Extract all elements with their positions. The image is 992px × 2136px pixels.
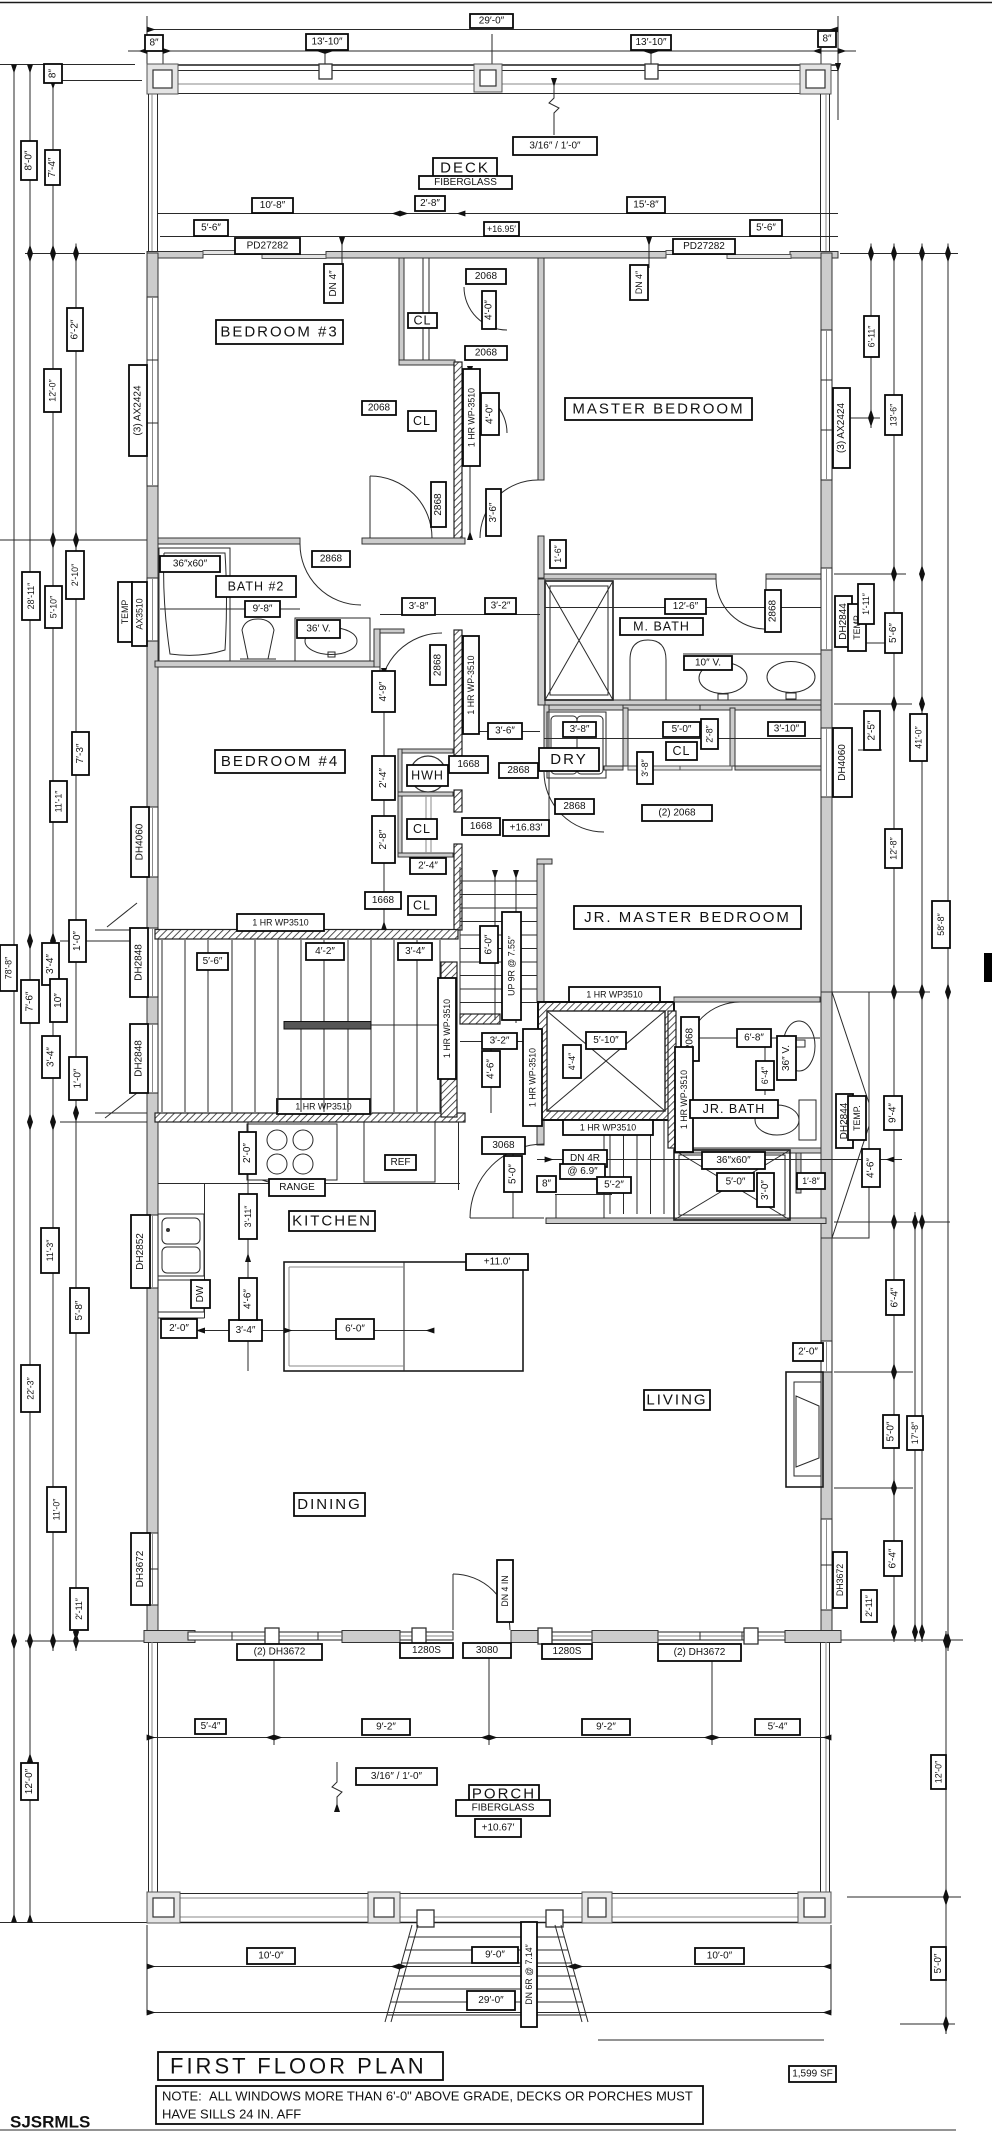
svg-text:1280S: 1280S xyxy=(553,1646,582,1657)
svg-text:1 HR WP3510: 1 HR WP3510 xyxy=(580,1123,636,1133)
svg-text:CL: CL xyxy=(413,414,431,428)
svg-text:3′-11″: 3′-11″ xyxy=(243,1206,253,1228)
svg-text:12′-6″: 12′-6″ xyxy=(673,601,699,612)
svg-text:12′-0″: 12′-0″ xyxy=(934,1761,944,1783)
svg-text:9′-2″: 9′-2″ xyxy=(596,1722,616,1733)
svg-text:6′-4″: 6′-4″ xyxy=(760,1067,770,1084)
svg-text:8″: 8″ xyxy=(542,1179,552,1190)
svg-text:9′-8″: 9′-8″ xyxy=(253,604,273,615)
svg-text:6′-4″: 6′-4″ xyxy=(890,1287,901,1307)
svg-text:1′-8″: 1′-8″ xyxy=(802,1176,819,1186)
svg-text:5′-2″: 5′-2″ xyxy=(604,1180,624,1191)
svg-text:12′-0″: 12′-0″ xyxy=(48,379,58,401)
svg-text:CL: CL xyxy=(413,899,431,913)
svg-text:4′-2″: 4′-2″ xyxy=(315,946,335,957)
svg-text:TEMP.: TEMP. xyxy=(852,1105,862,1131)
svg-text:3′-8″: 3′-8″ xyxy=(409,601,429,612)
svg-text:2868: 2868 xyxy=(433,493,444,516)
svg-text:3/16″ / 1′-0″: 3/16″ / 1′-0″ xyxy=(371,1771,423,1782)
svg-text:3′-6″: 3′-6″ xyxy=(495,726,515,737)
svg-text:2868: 2868 xyxy=(320,554,343,565)
svg-text:1,599 SF: 1,599 SF xyxy=(792,2069,833,2080)
svg-text:13′-10″: 13′-10″ xyxy=(636,37,667,48)
svg-text:7′-6″: 7′-6″ xyxy=(25,991,36,1011)
svg-text:BATH #2: BATH #2 xyxy=(228,580,285,594)
svg-text:1 HR WP-3510: 1 HR WP-3510 xyxy=(679,1070,689,1129)
svg-text:DRY: DRY xyxy=(550,751,587,768)
svg-text:(2) 2068: (2) 2068 xyxy=(658,808,696,819)
svg-text:LIVING: LIVING xyxy=(646,1392,707,1409)
svg-text:CL: CL xyxy=(673,744,691,758)
svg-text:6′-4″: 6′-4″ xyxy=(888,1548,899,1568)
svg-text:58′-8″: 58′-8″ xyxy=(936,913,946,935)
svg-text:DH4060: DH4060 xyxy=(135,823,146,860)
svg-text:1′-11″: 1′-11″ xyxy=(861,593,871,615)
svg-text:1 HR WP3510: 1 HR WP3510 xyxy=(586,990,642,1000)
svg-text:10′-0″: 10′-0″ xyxy=(707,1951,733,1962)
svg-text:FIRST FLOOR PLAN: FIRST FLOOR PLAN xyxy=(170,2054,427,2079)
svg-text:4′-6″: 4′-6″ xyxy=(243,1289,254,1309)
svg-text:1280S: 1280S xyxy=(412,1645,441,1656)
svg-text:10″: 10″ xyxy=(53,993,64,1008)
svg-text:2′-0″: 2′-0″ xyxy=(798,1347,818,1358)
svg-text:1668: 1668 xyxy=(470,821,493,832)
svg-text:11′-3″: 11′-3″ xyxy=(45,1240,55,1262)
svg-text:M. BATH: M. BATH xyxy=(633,620,690,634)
svg-text:3′-0″: 3′-0″ xyxy=(760,1180,771,1200)
svg-text:1′-0″: 1′-0″ xyxy=(73,1068,84,1088)
svg-text:6′-8″: 6′-8″ xyxy=(744,1033,764,1044)
svg-text:1′-6″: 1′-6″ xyxy=(553,545,563,562)
svg-text:10′-0″: 10′-0″ xyxy=(258,1951,284,1962)
svg-text:DECK: DECK xyxy=(440,160,490,177)
svg-text:1′-0″: 1′-0″ xyxy=(72,931,83,951)
svg-text:HWH: HWH xyxy=(411,769,444,783)
svg-text:1668: 1668 xyxy=(372,895,395,906)
svg-text:CL: CL xyxy=(414,314,432,328)
svg-text:PD27282: PD27282 xyxy=(247,241,289,252)
svg-text:5′-6″: 5′-6″ xyxy=(203,956,223,967)
svg-text:9′-2″: 9′-2″ xyxy=(376,1722,396,1733)
svg-text:5′-6″: 5′-6″ xyxy=(201,223,221,234)
svg-text:22′-3″: 22′-3″ xyxy=(26,1377,36,1399)
svg-text:+16.83′: +16.83′ xyxy=(510,823,543,834)
svg-text:2′-4″: 2′-4″ xyxy=(418,861,438,872)
svg-text:2′-11″: 2′-11″ xyxy=(74,1598,84,1620)
svg-text:MASTER BEDROOM: MASTER BEDROOM xyxy=(572,401,744,418)
svg-text:8″: 8″ xyxy=(48,68,59,78)
svg-text:FIBERGLASS: FIBERGLASS xyxy=(434,177,497,188)
svg-text:36″x60″: 36″x60″ xyxy=(716,1155,751,1166)
svg-text:5′-0″: 5′-0″ xyxy=(508,1164,519,1184)
svg-text:9′-0″: 9′-0″ xyxy=(485,1950,505,1961)
svg-text:78′-8″: 78′-8″ xyxy=(4,957,14,979)
svg-text:@ 6.9″: @ 6.9″ xyxy=(567,1166,598,1177)
svg-text:6′-2″: 6′-2″ xyxy=(70,319,81,339)
svg-text:5′-10″: 5′-10″ xyxy=(49,596,59,618)
svg-text:3080: 3080 xyxy=(476,1645,499,1656)
svg-text:+16.95′: +16.95′ xyxy=(487,224,516,234)
svg-text:4′-0″: 4′-0″ xyxy=(485,404,496,424)
svg-text:29′-0″: 29′-0″ xyxy=(479,16,505,27)
svg-text:1668: 1668 xyxy=(457,759,480,770)
svg-text:3′-10″: 3′-10″ xyxy=(774,724,800,735)
svg-text:DN 4″: DN 4″ xyxy=(634,271,644,294)
svg-text:3′-4″: 3′-4″ xyxy=(236,1325,256,1336)
svg-text:3′-2″: 3′-2″ xyxy=(490,1036,510,1047)
svg-text:DN 4R: DN 4R xyxy=(570,1153,600,1164)
svg-text:1 HR WP3510: 1 HR WP3510 xyxy=(252,918,308,928)
svg-text:2868: 2868 xyxy=(563,801,586,812)
svg-text:(3) AX2424: (3) AX2424 xyxy=(836,403,847,453)
svg-text:2′-4″: 2′-4″ xyxy=(378,768,389,788)
svg-text:5′-4″: 5′-4″ xyxy=(201,1721,221,1732)
svg-text:BEDROOM #4: BEDROOM #4 xyxy=(221,753,339,770)
svg-text:JR. BATH: JR. BATH xyxy=(703,1102,766,1116)
svg-text:6′-11″: 6′-11″ xyxy=(867,326,877,348)
svg-text:BEDROOM #3: BEDROOM #3 xyxy=(220,324,338,341)
svg-text:2′-5″: 2′-5″ xyxy=(867,720,878,740)
svg-text:17′-8″: 17′-8″ xyxy=(910,1422,920,1444)
svg-text:2′-8″: 2′-8″ xyxy=(705,725,715,742)
svg-text:DINING: DINING xyxy=(297,1496,362,1513)
svg-text:DH3672: DH3672 xyxy=(835,1564,845,1596)
svg-text:DN 6R @ 7.14″: DN 6R @ 7.14″ xyxy=(524,1944,534,2004)
svg-text:1 HR WP-3510: 1 HR WP-3510 xyxy=(466,655,476,714)
svg-text:8″: 8″ xyxy=(149,38,159,49)
svg-text:8′-0″: 8′-0″ xyxy=(24,150,35,170)
svg-text:JR. MASTER BEDROOM: JR. MASTER BEDROOM xyxy=(584,909,791,926)
svg-text:UP 9R @ 7.55″: UP 9R @ 7.55″ xyxy=(507,936,517,996)
svg-text:10′-8″: 10′-8″ xyxy=(260,200,286,211)
svg-text:1 HR WP-3510: 1 HR WP-3510 xyxy=(467,388,477,447)
svg-text:2868: 2868 xyxy=(433,653,444,676)
svg-text:5′-0″: 5′-0″ xyxy=(726,1177,746,1188)
svg-text:2′-8″: 2′-8″ xyxy=(378,829,389,849)
svg-text:9′-4″: 9′-4″ xyxy=(888,1103,899,1123)
svg-text:RANGE: RANGE xyxy=(279,1182,315,1193)
svg-text:1 HR WP-3510: 1 HR WP-3510 xyxy=(528,1048,538,1107)
svg-text:2′-0″: 2′-0″ xyxy=(242,1143,253,1163)
svg-text:5′-0″: 5′-0″ xyxy=(672,724,692,735)
svg-text:12′-8″: 12′-8″ xyxy=(889,837,899,859)
svg-text:5′-10″: 5′-10″ xyxy=(593,1035,619,1046)
svg-text:15′-8″: 15′-8″ xyxy=(633,200,659,211)
svg-text:29′-0″: 29′-0″ xyxy=(478,1995,504,2006)
svg-text:5′-0″: 5′-0″ xyxy=(886,1421,897,1441)
svg-text:1 HR WP-3510: 1 HR WP-3510 xyxy=(442,999,452,1058)
svg-text:TEMP: TEMP xyxy=(120,600,130,625)
svg-text:2′-10″: 2′-10″ xyxy=(70,564,80,586)
svg-text:28′-11″: 28′-11″ xyxy=(26,583,36,610)
svg-text:3′-6″: 3′-6″ xyxy=(488,502,499,522)
svg-text:5′-8″: 5′-8″ xyxy=(74,1300,85,1320)
svg-text:DN 4″: DN 4″ xyxy=(328,270,339,297)
svg-text:2′-0″: 2′-0″ xyxy=(169,1323,189,1334)
svg-text:DH2848: DH2848 xyxy=(134,944,145,981)
svg-text:PD27282: PD27282 xyxy=(683,241,725,252)
svg-text:3′-4″: 3′-4″ xyxy=(46,1047,57,1067)
svg-text:36″ V.: 36″ V. xyxy=(781,1045,792,1071)
svg-text:4′-0″: 4′-0″ xyxy=(484,300,495,320)
svg-text:2068: 2068 xyxy=(475,271,498,282)
svg-text:REF: REF xyxy=(391,1157,411,1168)
svg-text:+11.0′: +11.0′ xyxy=(484,1257,511,1268)
svg-text:DN 4 IN: DN 4 IN xyxy=(500,1575,510,1606)
svg-text:36″x60″: 36″x60″ xyxy=(173,559,208,570)
svg-text:12′-0″: 12′-0″ xyxy=(24,1768,35,1794)
svg-text:8″: 8″ xyxy=(822,34,832,45)
svg-text:2868: 2868 xyxy=(507,765,530,776)
svg-text:(2) DH3672: (2) DH3672 xyxy=(254,1647,306,1658)
svg-text:7′-4″: 7′-4″ xyxy=(47,157,58,177)
svg-text:SJSRMLS: SJSRMLS xyxy=(10,2113,90,2132)
svg-text:13′-6″: 13′-6″ xyxy=(889,404,899,426)
svg-text:41′-0″: 41′-0″ xyxy=(914,726,924,748)
svg-text:NOTE: ALL WINDOWS MORE THAN 6: NOTE: ALL WINDOWS MORE THAN 6'-0" ABOVE … xyxy=(162,2089,693,2104)
svg-text:6′-0″: 6′-0″ xyxy=(345,1324,365,1335)
svg-text:(3) AX2424: (3) AX2424 xyxy=(133,385,144,435)
svg-text:DH2852: DH2852 xyxy=(135,1233,146,1270)
svg-text:3′-8″: 3′-8″ xyxy=(640,759,650,776)
svg-text:2068: 2068 xyxy=(368,403,391,414)
svg-text:DH2848: DH2848 xyxy=(134,1040,145,1077)
svg-text:11′-1″: 11′-1″ xyxy=(54,791,64,813)
svg-text:2068: 2068 xyxy=(475,348,498,359)
svg-text:DH3672: DH3672 xyxy=(135,1550,146,1587)
svg-text:2′-11″: 2′-11″ xyxy=(864,1595,874,1617)
svg-text:AX3510: AX3510 xyxy=(135,598,145,629)
svg-text:7′-3″: 7′-3″ xyxy=(75,743,86,763)
svg-text:CL: CL xyxy=(413,822,431,836)
svg-text:2868: 2868 xyxy=(768,599,779,622)
svg-text:DW: DW xyxy=(195,1285,206,1302)
svg-text:+10.67′: +10.67′ xyxy=(482,1823,515,1834)
svg-text:13′-10″: 13′-10″ xyxy=(312,37,343,48)
svg-text:5′-0″: 5′-0″ xyxy=(933,1953,944,1973)
svg-text:5′-6″: 5′-6″ xyxy=(888,623,899,643)
svg-text:DH4060: DH4060 xyxy=(837,744,848,781)
svg-text:6′-0″: 6′-0″ xyxy=(484,934,495,954)
svg-text:11′-0″: 11′-0″ xyxy=(52,1499,62,1521)
svg-text:3′-4″: 3′-4″ xyxy=(405,946,425,957)
svg-text:5′-4″: 5′-4″ xyxy=(768,1722,788,1733)
svg-text:3′-2″: 3′-2″ xyxy=(491,601,511,612)
svg-text:2′-8″: 2′-8″ xyxy=(420,198,440,209)
svg-text:3068: 3068 xyxy=(492,1140,515,1151)
svg-text:10″ V.: 10″ V. xyxy=(695,658,721,669)
svg-text:4′-6″: 4′-6″ xyxy=(866,1158,877,1178)
svg-text:3′-8″: 3′-8″ xyxy=(570,724,590,735)
svg-text:3′-4″: 3′-4″ xyxy=(45,954,56,974)
svg-text:FIBERGLASS: FIBERGLASS xyxy=(472,1803,535,1814)
svg-text:36′ V.: 36′ V. xyxy=(306,624,330,635)
svg-text:4′-6″: 4′-6″ xyxy=(486,1059,497,1079)
svg-text:4′-4″: 4′-4″ xyxy=(567,1053,577,1070)
svg-text:HAVE SILLS 24 IN. AFF: HAVE SILLS 24 IN. AFF xyxy=(162,2107,301,2122)
svg-text:KITCHEN: KITCHEN xyxy=(292,1213,372,1230)
svg-text:4′-9″: 4′-9″ xyxy=(378,681,389,701)
svg-text:(2) DH3672: (2) DH3672 xyxy=(674,1647,726,1658)
svg-text:5′-6″: 5′-6″ xyxy=(756,223,776,234)
svg-text:3/16″ / 1′-0″: 3/16″ / 1′-0″ xyxy=(529,141,581,152)
